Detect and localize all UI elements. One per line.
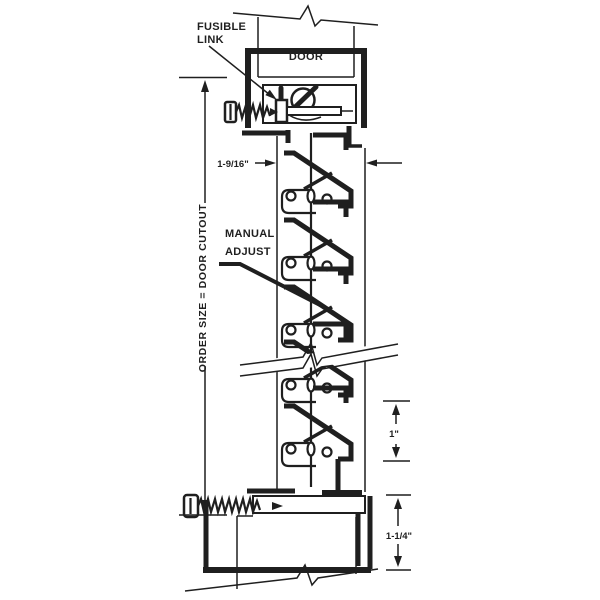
blade-top-bar xyxy=(313,269,346,284)
bottom-retainer xyxy=(253,496,365,513)
blade-pivot-circle xyxy=(287,259,296,268)
blade-pivot-circle xyxy=(287,381,296,390)
louver-depth-left-pointing-arrowhead xyxy=(366,160,377,167)
blade-spacing-label: 1" xyxy=(389,429,399,440)
blade-lip xyxy=(304,173,332,189)
middle-break-line xyxy=(240,342,398,377)
order-size-label: ORDER SIZE = DOOR CUTOUT xyxy=(197,204,209,373)
blade-lip xyxy=(304,240,332,256)
order-size-dimension: ORDER SIZE = DOOR CUTOUT xyxy=(179,78,227,516)
top-break-line xyxy=(233,6,378,26)
manual-adjust-label-line1: MANUAL xyxy=(225,228,274,240)
manual-adjust-leader xyxy=(219,264,322,306)
door-top: DOOR xyxy=(233,6,378,77)
blade-pivot-circle xyxy=(323,329,332,338)
louver-blade-unit xyxy=(282,388,351,466)
blade-pivot-circle xyxy=(287,326,296,335)
blade-lip xyxy=(304,307,332,323)
fusible-link-assembly xyxy=(263,85,356,123)
blade-spacing-dimension: 1" xyxy=(383,401,410,461)
door-louver-section-diagram: DOOR xyxy=(0,0,600,600)
frame-height-label: 1-1/4" xyxy=(386,531,412,542)
door-bottom xyxy=(185,516,378,591)
blade-lip xyxy=(304,426,332,442)
manual-adjust-callout: MANUAL ADJUST xyxy=(225,228,274,258)
frame-height-dimension: 1-1/4" xyxy=(386,495,412,570)
fusible-link-label-line1: FUSIBLE xyxy=(197,21,246,33)
blade-top-bar xyxy=(313,202,346,217)
blade-top-bar xyxy=(313,135,346,150)
blade-pivot-circle xyxy=(323,448,332,457)
manual-adjust-label-line2: ADJUST xyxy=(225,246,271,258)
blade-pivot-circle xyxy=(287,192,296,201)
fusible-link-label-line2: LINK xyxy=(197,34,224,46)
bottom-frame-channel xyxy=(203,459,371,574)
rod-knuckle xyxy=(308,443,315,456)
blade-pivot-circle xyxy=(287,445,296,454)
louver-section xyxy=(277,133,365,492)
louver-depth-label: 1-9/16" xyxy=(217,159,248,170)
louver-depth-right-pointing-arrowhead xyxy=(265,160,276,167)
actuator-rod xyxy=(287,107,341,115)
diagram-canvas: DOOR xyxy=(0,0,600,600)
fusible-link-body xyxy=(276,100,287,122)
